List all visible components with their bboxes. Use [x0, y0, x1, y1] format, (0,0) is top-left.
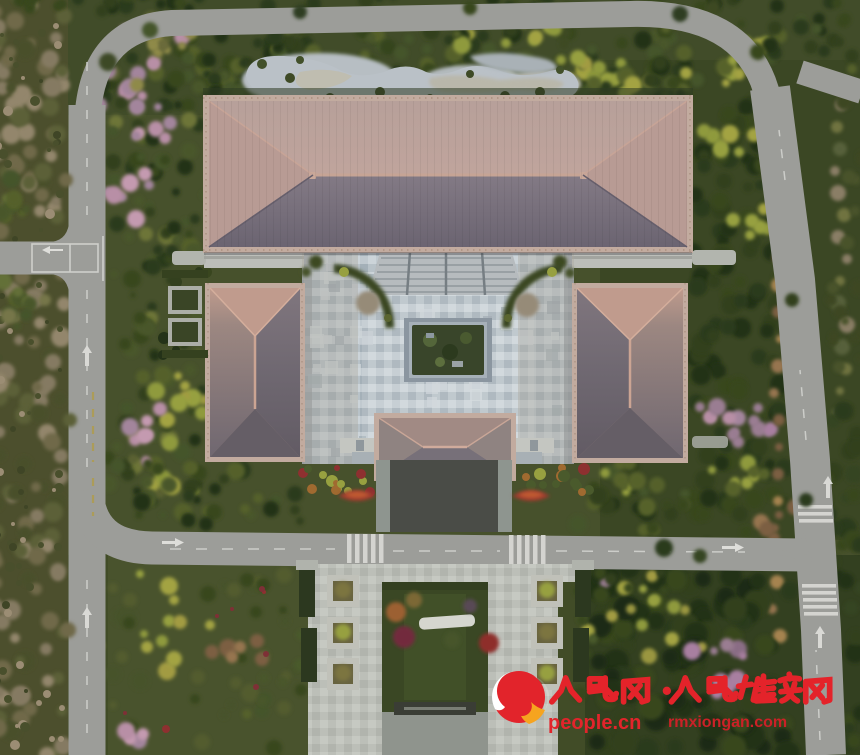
- svg-text:people.cn: people.cn: [548, 712, 641, 734]
- svg-text:rmxiongan.com: rmxiongan.com: [668, 714, 787, 731]
